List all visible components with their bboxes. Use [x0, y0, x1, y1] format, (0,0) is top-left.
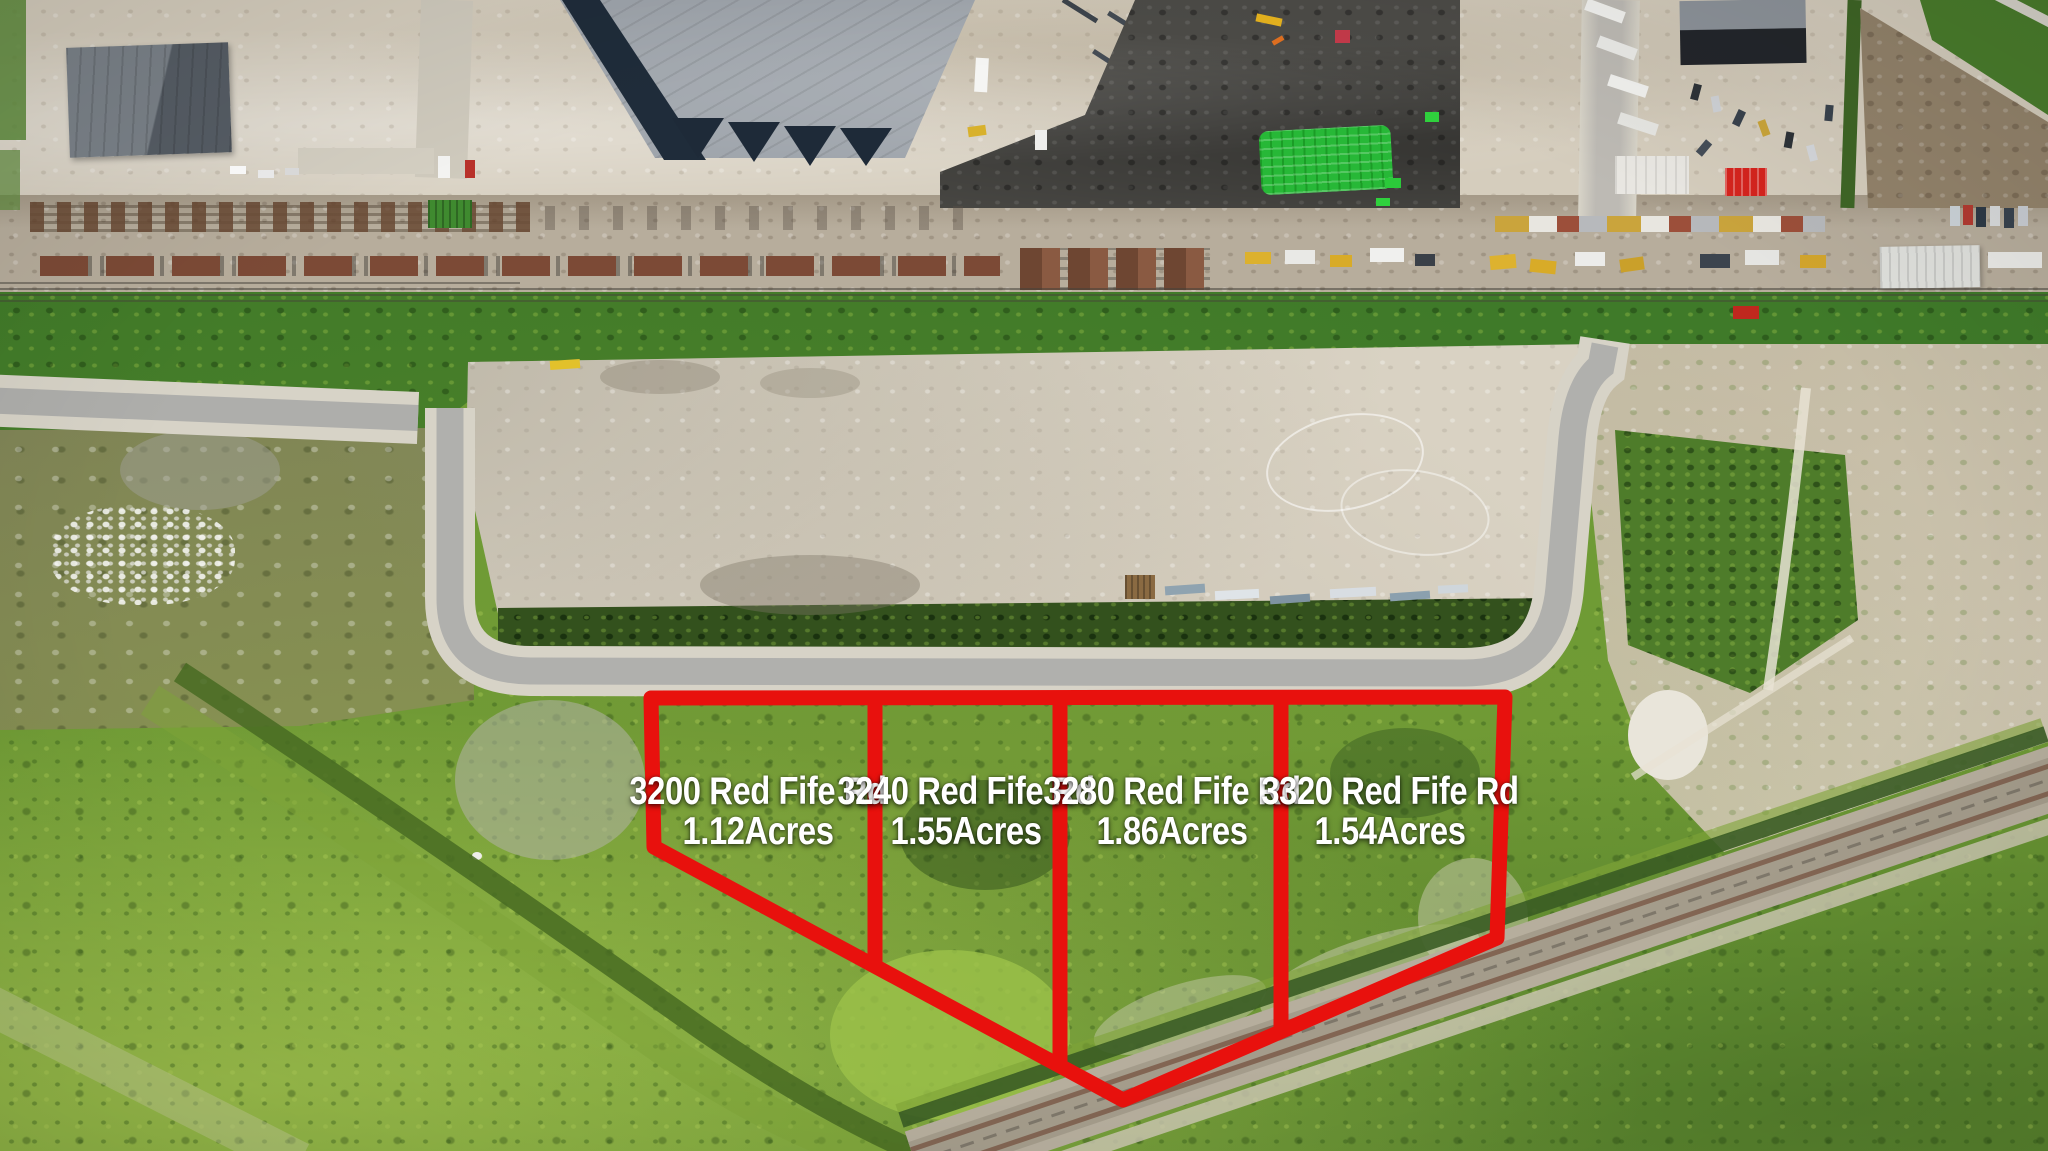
- photo-vignette: [0, 0, 2048, 1151]
- aerial-parcel-map: 3200 Red Fife Rd 1.12Acres 3240 Red Fife…: [0, 0, 2048, 1151]
